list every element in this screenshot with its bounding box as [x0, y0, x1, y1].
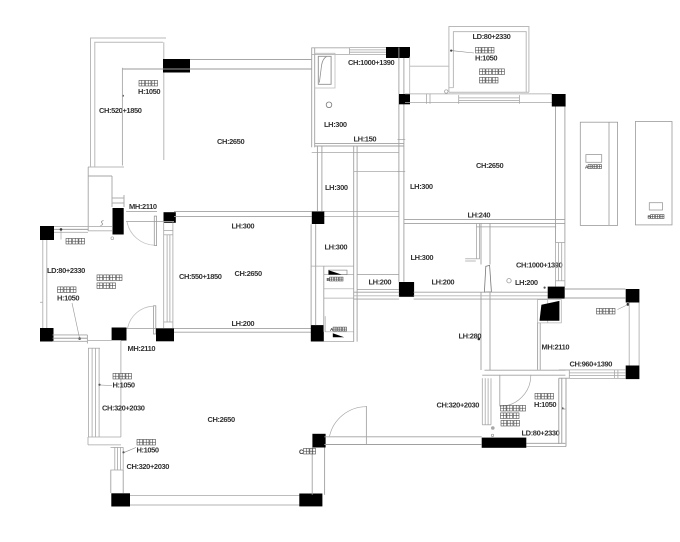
svg-text:MH:2110: MH:2110: [129, 202, 157, 211]
svg-text:CH:320+2030: CH:320+2030: [437, 401, 480, 410]
svg-text:LH:300: LH:300: [324, 120, 347, 129]
svg-text:LH:300: LH:300: [232, 221, 255, 230]
svg-text:LH:200: LH:200: [432, 278, 455, 287]
svg-text:LH:300: LH:300: [325, 243, 348, 252]
svg-text:LH:200: LH:200: [369, 278, 392, 287]
svg-text:CH:320+2030: CH:320+2030: [127, 462, 170, 471]
svg-text:CH:520+1850: CH:520+1850: [99, 106, 142, 115]
svg-text:H:1050: H:1050: [137, 446, 159, 455]
svg-text:H:1050: H:1050: [138, 87, 160, 96]
svg-text:LH:240: LH:240: [468, 210, 491, 219]
svg-text:H:1050: H:1050: [113, 381, 135, 390]
svg-text:CH:2650: CH:2650: [217, 137, 244, 146]
svg-text:LD:80+2330: LD:80+2330: [473, 32, 511, 41]
svg-text:CH:320+2030: CH:320+2030: [102, 404, 145, 413]
svg-text:H:1050: H:1050: [475, 54, 497, 63]
svg-text:CH:2650: CH:2650: [235, 269, 262, 278]
svg-text:CH:960+1390: CH:960+1390: [570, 360, 613, 369]
svg-text:CH:550+1850: CH:550+1850: [179, 272, 222, 281]
svg-text:CH:1000+1390: CH:1000+1390: [348, 58, 395, 67]
svg-text:H:1050: H:1050: [57, 294, 79, 303]
svg-text:LD:80+2330: LD:80+2330: [522, 429, 560, 438]
svg-text:LD:80+2330: LD:80+2330: [47, 266, 85, 275]
svg-text:CH:2650: CH:2650: [208, 415, 235, 424]
svg-text:H:1050: H:1050: [534, 400, 556, 409]
svg-text:CH:2650: CH:2650: [476, 161, 503, 170]
svg-text:LH:150: LH:150: [354, 135, 377, 144]
svg-text:MH:2110: MH:2110: [128, 344, 156, 353]
svg-text:LH:200: LH:200: [515, 278, 538, 287]
svg-text:LH:300: LH:300: [411, 253, 434, 262]
svg-text:LH:200: LH:200: [232, 319, 255, 328]
svg-text:LH:300: LH:300: [410, 182, 433, 191]
svg-text:MH:2110: MH:2110: [542, 343, 570, 352]
svg-text:LH:300: LH:300: [325, 183, 348, 192]
